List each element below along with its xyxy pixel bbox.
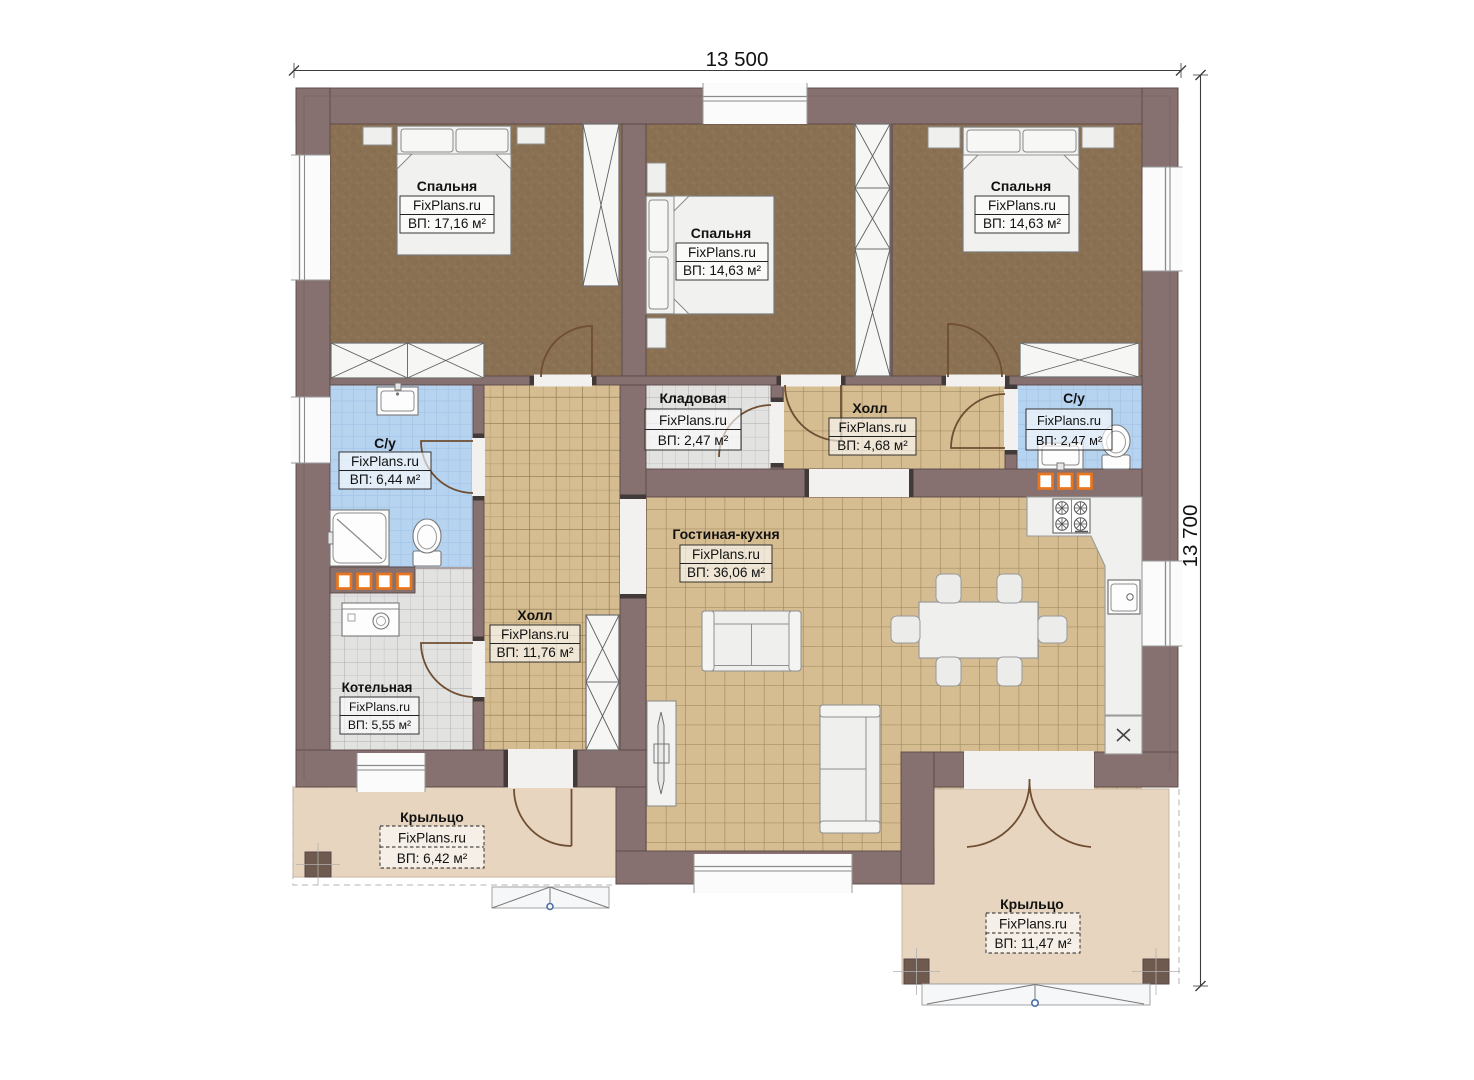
svg-text:Спальня: Спальня xyxy=(417,178,477,194)
svg-text:С/у: С/у xyxy=(374,435,396,451)
svg-text:Спальня: Спальня xyxy=(991,178,1051,194)
svg-text:13 700: 13 700 xyxy=(1179,505,1202,568)
svg-text:FixPlans.ru: FixPlans.ru xyxy=(688,245,756,260)
svg-text:Крыльцо: Крыльцо xyxy=(1000,896,1064,912)
svg-text:ВП: 5,55 м²: ВП: 5,55 м² xyxy=(348,718,411,732)
svg-text:FixPlans.ru: FixPlans.ru xyxy=(1037,413,1101,428)
svg-text:ВП: 6,44 м²: ВП: 6,44 м² xyxy=(350,472,421,487)
svg-text:FixPlans.ru: FixPlans.ru xyxy=(999,917,1067,932)
svg-text:ВП: 17,16 м²: ВП: 17,16 м² xyxy=(408,216,487,231)
svg-text:Гостиная-кухня: Гостиная-кухня xyxy=(672,526,779,542)
svg-text:Кладовая: Кладовая xyxy=(659,390,726,406)
svg-text:ВП: 11,47 м²: ВП: 11,47 м² xyxy=(994,936,1072,951)
svg-text:ВП: 14,63 м²: ВП: 14,63 м² xyxy=(683,263,762,278)
svg-text:ВП: 11,76 м²: ВП: 11,76 м² xyxy=(496,645,574,660)
svg-text:ВП: 2,47 м²: ВП: 2,47 м² xyxy=(1036,433,1103,448)
svg-text:Холл: Холл xyxy=(517,607,552,623)
svg-text:Спальня: Спальня xyxy=(691,225,751,241)
svg-text:FixPlans.ru: FixPlans.ru xyxy=(659,413,727,428)
svg-text:FixPlans.ru: FixPlans.ru xyxy=(398,831,466,846)
svg-text:С/у: С/у xyxy=(1063,390,1085,406)
svg-text:FixPlans.ru: FixPlans.ru xyxy=(692,547,760,562)
svg-text:ВП: 14,63 м²: ВП: 14,63 м² xyxy=(983,216,1062,231)
svg-text:ВП: 36,06 м²: ВП: 36,06 м² xyxy=(687,565,766,580)
svg-text:FixPlans.ru: FixPlans.ru xyxy=(351,454,419,469)
svg-text:Холл: Холл xyxy=(852,400,887,416)
svg-text:FixPlans.ru: FixPlans.ru xyxy=(839,420,907,435)
svg-text:ВП: 4,68 м²: ВП: 4,68 м² xyxy=(837,438,908,453)
svg-text:ВП: 6,42 м²: ВП: 6,42 м² xyxy=(397,851,468,866)
svg-text:FixPlans.ru: FixPlans.ru xyxy=(501,627,569,642)
svg-text:FixPlans.ru: FixPlans.ru xyxy=(349,700,410,714)
svg-text:FixPlans.ru: FixPlans.ru xyxy=(413,198,481,213)
svg-text:FixPlans.ru: FixPlans.ru xyxy=(988,198,1056,213)
svg-text:Котельная: Котельная xyxy=(342,680,413,695)
svg-text:ВП: 2,47 м²: ВП: 2,47 м² xyxy=(658,433,729,448)
svg-text:Крыльцо: Крыльцо xyxy=(400,809,464,825)
svg-text:13 500: 13 500 xyxy=(706,48,769,71)
